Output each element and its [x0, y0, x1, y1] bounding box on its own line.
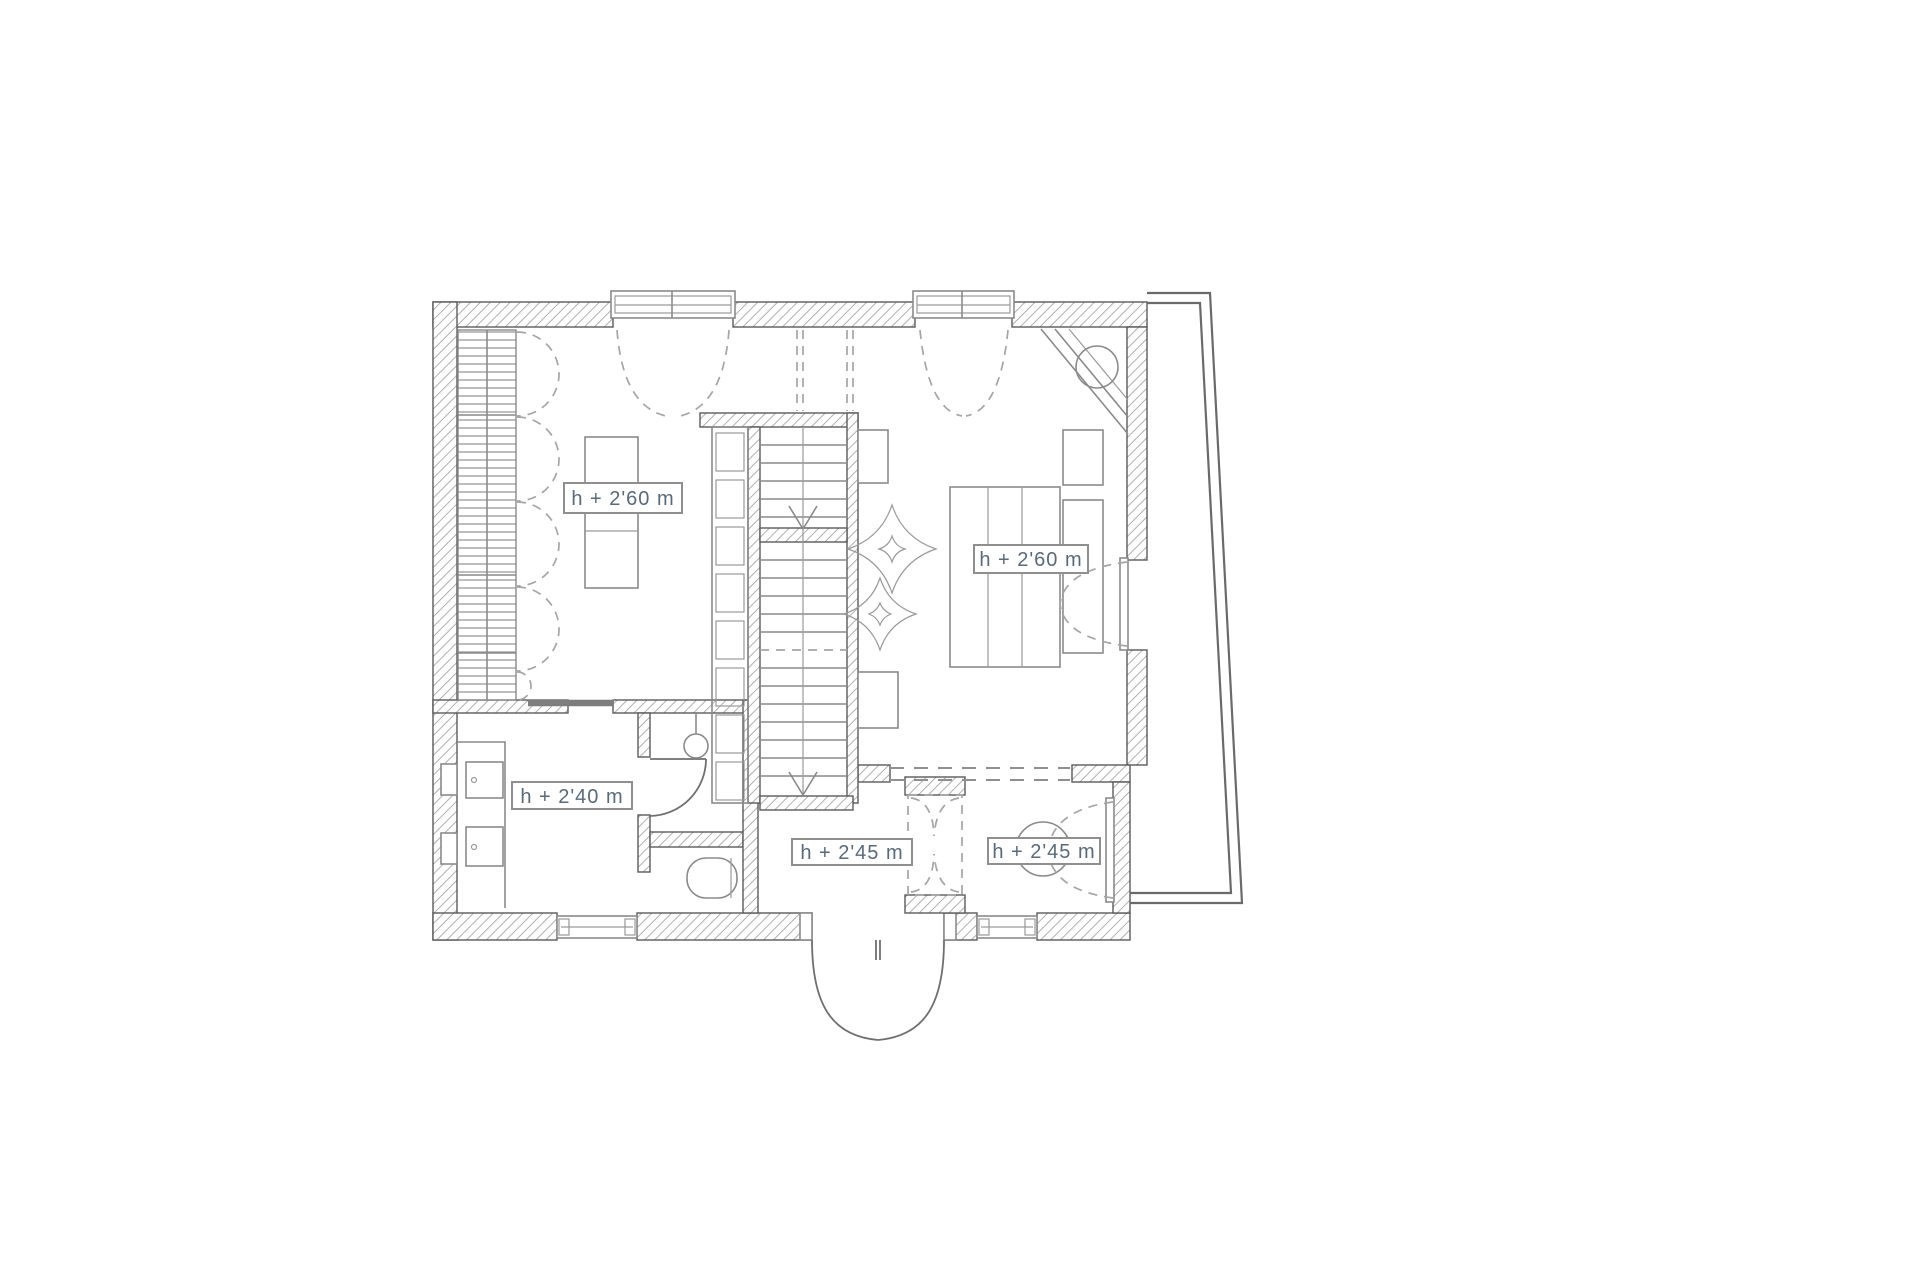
- nightstand-top-left: [858, 430, 888, 483]
- window-bathroom: [557, 916, 637, 938]
- window-terrace-room: [977, 916, 1037, 938]
- flue-circle: [1076, 346, 1118, 388]
- floor-plan-drawing: h + 2'60 m h + 2'60 m h + 2'40 m h + 2'4…: [0, 0, 1920, 1280]
- wc-door: [650, 759, 706, 816]
- entrance-step: [800, 913, 812, 940]
- bench: [1063, 500, 1103, 653]
- height-label-hallway-text: h + 2'45 m: [800, 842, 903, 864]
- ceiling-break-dashes: [797, 330, 853, 411]
- radiator-bottom: [441, 833, 457, 864]
- closet: [908, 795, 962, 895]
- height-label-bedroom: h + 2'60 m: [974, 545, 1088, 573]
- window-top-right: [913, 291, 1014, 416]
- entrance-step: [944, 913, 956, 940]
- toilet: [687, 858, 737, 898]
- staircase: [712, 427, 847, 803]
- radiator-top: [441, 764, 457, 795]
- bed: [950, 487, 1060, 667]
- height-label-terrace-room-text: h + 2'45 m: [992, 841, 1095, 863]
- height-label-hallway: h + 2'45 m: [792, 839, 912, 865]
- wardrobe: [458, 330, 559, 700]
- height-label-bedroom-text: h + 2'60 m: [979, 549, 1082, 571]
- wc-sink: [684, 713, 708, 758]
- window-top-left: [611, 291, 735, 417]
- height-label-dressing-room: h + 2'60 m: [564, 483, 682, 513]
- height-label-bathroom-text: h + 2'40 m: [520, 786, 623, 808]
- height-label-terrace-room: h + 2'45 m: [988, 838, 1100, 864]
- height-label-dressing-text: h + 2'60 m: [571, 488, 674, 510]
- corner-fireplace: [1041, 329, 1128, 434]
- nightstand-bottom-left: [858, 672, 898, 728]
- wc-compartment: [650, 713, 737, 898]
- floor-plan-page: h + 2'60 m h + 2'60 m h + 2'40 m h + 2'4…: [0, 0, 1920, 1280]
- height-label-bathroom: h + 2'40 m: [512, 782, 632, 809]
- nightstand-right: [1063, 430, 1103, 485]
- entrance-double-door: [812, 940, 944, 1040]
